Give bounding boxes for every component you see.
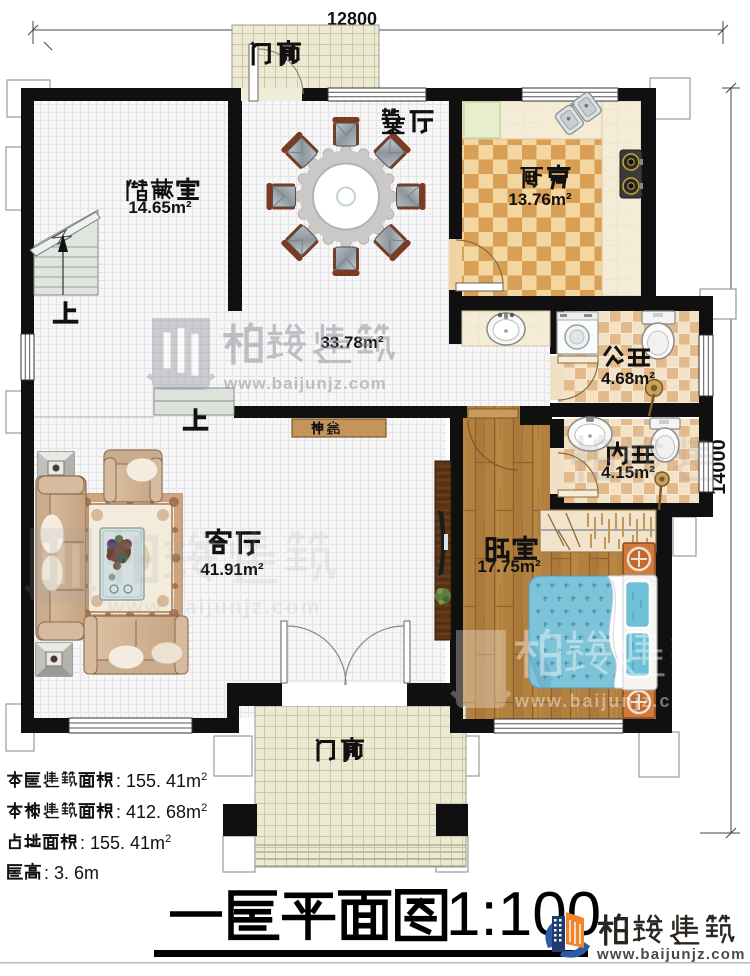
svg-text:17.75m²: 17.75m² bbox=[477, 557, 541, 576]
svg-text:www.baijunjz.com: www.baijunjz.com bbox=[514, 691, 702, 711]
svg-text:: 155. 41m2: : 155. 41m2 bbox=[80, 833, 171, 853]
svg-text:www.baijunjz.com: www.baijunjz.com bbox=[223, 374, 387, 393]
svg-text:: 412. 68m2: : 412. 68m2 bbox=[116, 802, 207, 822]
svg-text:13.76m²: 13.76m² bbox=[508, 190, 572, 209]
svg-text:: 3. 6m: : 3. 6m bbox=[44, 863, 99, 883]
svg-text:14.65m²: 14.65m² bbox=[128, 198, 192, 217]
svg-text:www.baijunjz.com: www.baijunjz.com bbox=[107, 596, 321, 619]
svg-text:www.baijunjz.com: www.baijunjz.com bbox=[596, 946, 746, 963]
svg-text:: 155. 41m2: : 155. 41m2 bbox=[116, 771, 207, 791]
svg-text:4.68m²: 4.68m² bbox=[601, 369, 655, 388]
